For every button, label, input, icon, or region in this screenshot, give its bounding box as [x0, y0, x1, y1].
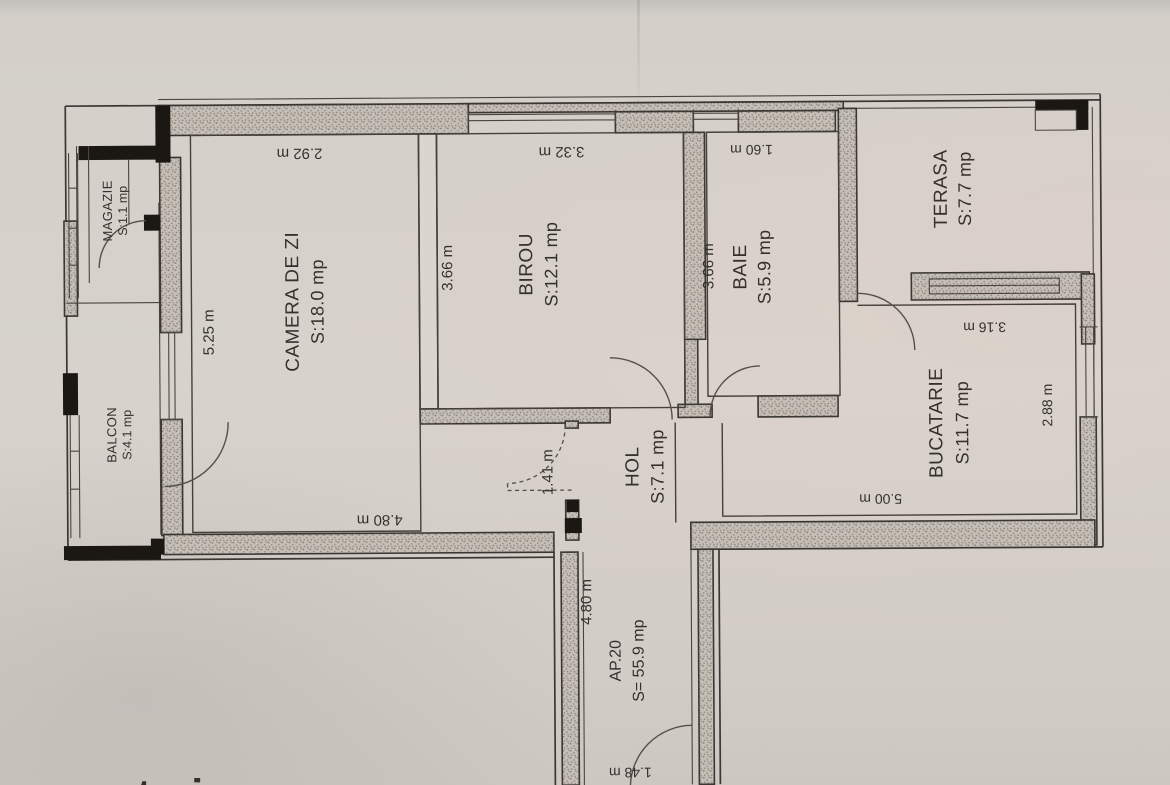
hol-door-arc: [507, 425, 565, 483]
room-area-hol: S:7.1 mp: [647, 429, 667, 504]
baie-door-arc: [710, 366, 760, 416]
dim-camera-bottom: 4.80 m: [357, 511, 403, 528]
room-label-hol: HOL: [622, 446, 643, 487]
dim-baie-left: 3.66 m: [700, 243, 717, 289]
apartment-label: AP.20: [608, 640, 625, 682]
dim-camera-left: 5.25 m: [200, 309, 217, 355]
dim-hol-door: 1.41 m: [539, 449, 556, 495]
room-label-terasa: TERASA: [931, 149, 952, 228]
room-label-balcon: BALCON: [104, 407, 119, 463]
room-area-balcon: S:4.1 mp: [120, 410, 134, 460]
dim-camera-top: 2.92 m: [277, 145, 323, 162]
room-label-magazie: MAGAZIE: [100, 180, 115, 241]
dim-entrance-door: 1.48 m: [609, 765, 652, 781]
dim-terasa-bottom: 3.16 m: [963, 319, 1006, 335]
room-area-bucatarie: S:11.7 mp: [952, 381, 973, 465]
dim-birou-top: 3.32 m: [539, 143, 585, 160]
dim-baie-top: 1.60 m: [730, 142, 773, 158]
dim-bucatarie-bottom: 5.00 m: [859, 491, 902, 507]
dim-corridor: 4.80 m: [578, 579, 595, 625]
room-label-birou: BIROU: [516, 233, 537, 296]
room-label-camera-de-zi: CAMERA DE ZI: [282, 232, 304, 372]
terasa-door-arc: [857, 293, 914, 350]
room-area-terasa: S:7.7 mp: [955, 151, 975, 226]
apartment-area: S= 55.9 mp: [630, 619, 648, 701]
room-label-baie: BAIE: [730, 244, 751, 289]
dim-bucatarie-right: 2.88 m: [1039, 384, 1055, 427]
room-area-birou: S:12.1 mp: [541, 222, 562, 307]
room-area-magazie: S:1.1 mp: [116, 186, 130, 236]
floor-plan-photo: CAMERA DE ZI S:18.0 mp BIROU S:12.1 mp B…: [0, 0, 1170, 785]
room-area-baie: S:5.9 mp: [754, 230, 774, 305]
dim-birou-left: 3.66 m: [439, 245, 456, 291]
floor-plan-drawing: CAMERA DE ZI S:18.0 mp BIROU S:12.1 mp B…: [0, 0, 1170, 785]
room-area-camera-de-zi: S:18.0 mp: [307, 259, 328, 344]
storia-watermark: storia: [114, 771, 227, 785]
room-label-bucatarie: BUCATARIE: [926, 368, 948, 479]
birou-door-arc: [610, 357, 672, 419]
doors: [99, 216, 917, 785]
